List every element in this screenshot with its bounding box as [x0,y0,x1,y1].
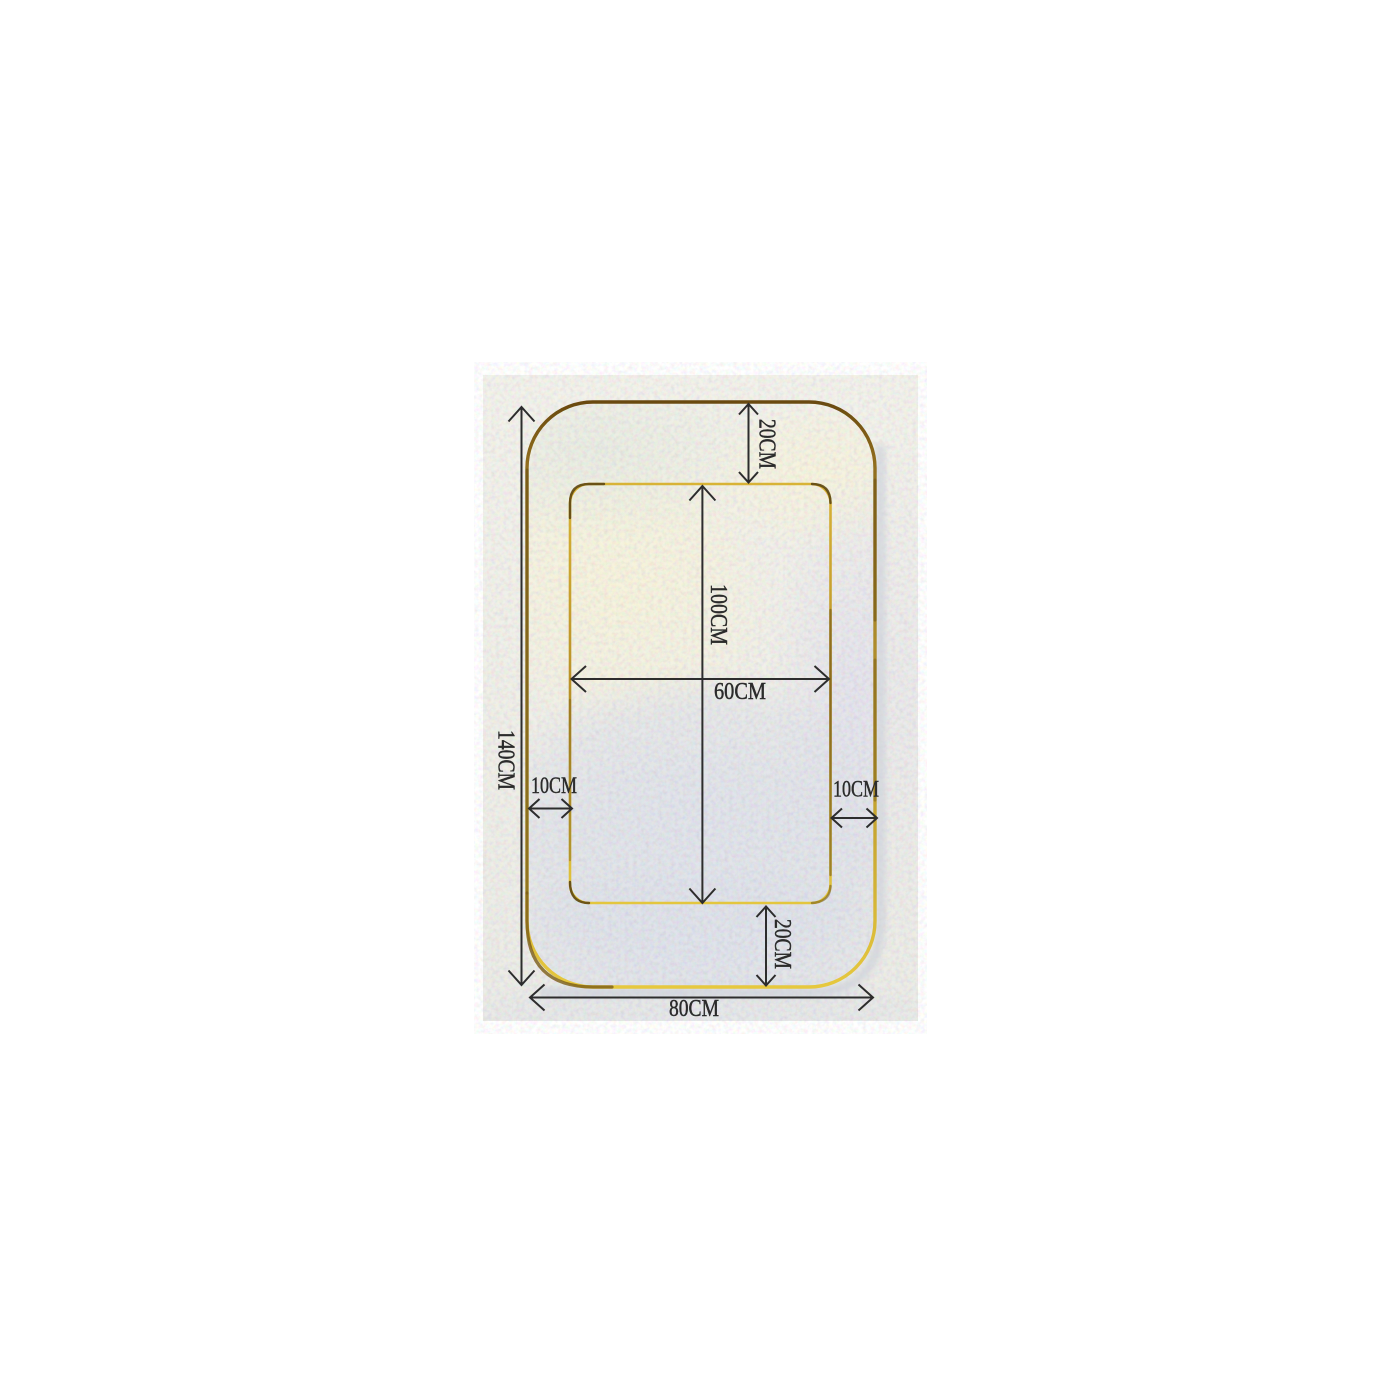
svg-text:10CM: 10CM [833,776,879,801]
svg-text:20CM: 20CM [753,419,779,469]
svg-text:60CM: 60CM [714,679,766,705]
svg-text:140CM: 140CM [492,730,518,790]
svg-text:10CM: 10CM [531,773,577,798]
svg-text:80CM: 80CM [669,996,719,1022]
svg-text:20CM: 20CM [769,919,795,969]
svg-text:100CM: 100CM [705,584,731,645]
